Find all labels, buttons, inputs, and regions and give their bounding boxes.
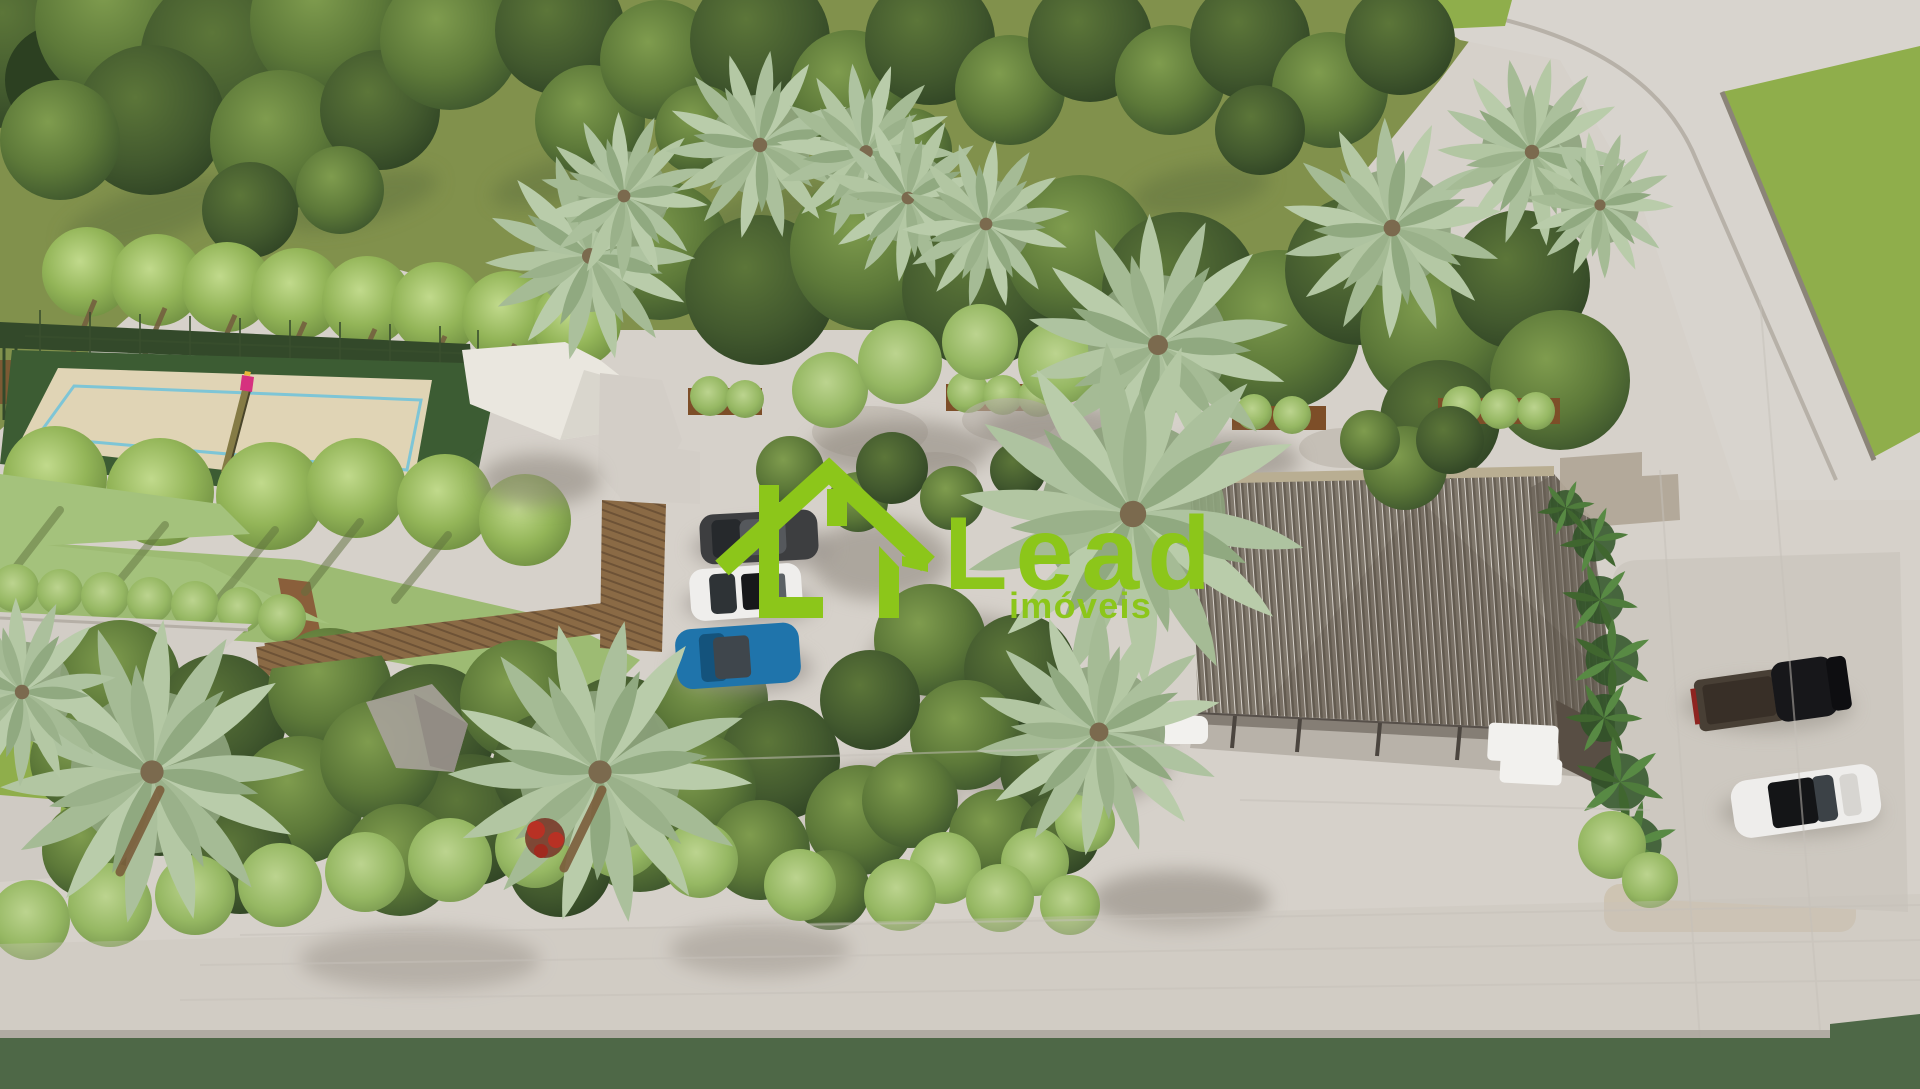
svg-text:imóveis: imóveis xyxy=(1009,585,1152,626)
